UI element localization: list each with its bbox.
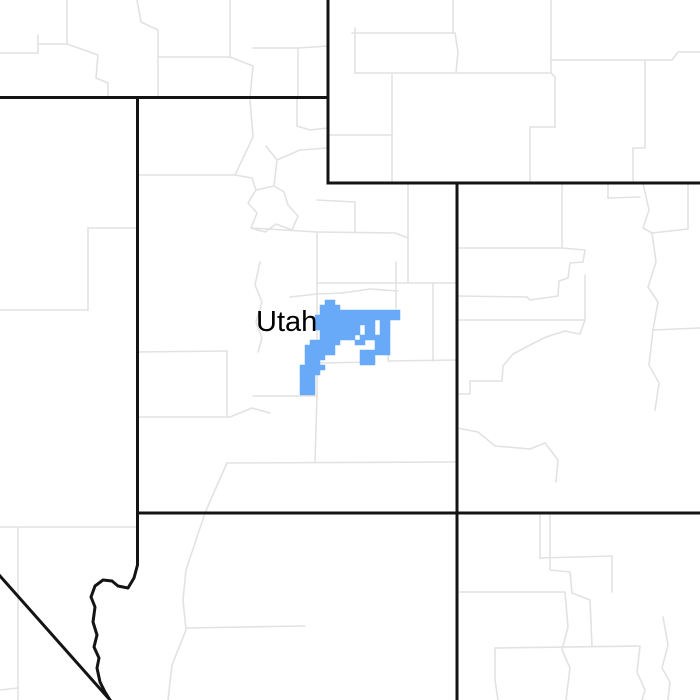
alert-region-cell[interactable] <box>300 385 306 391</box>
alert-region-cell[interactable] <box>350 315 356 321</box>
alert-region-cell[interactable] <box>365 320 371 326</box>
alert-region-cell[interactable] <box>340 335 346 341</box>
alert-region-cell[interactable] <box>380 340 386 346</box>
alert-region-cell[interactable] <box>330 330 336 336</box>
alert-region-cell[interactable] <box>370 360 376 366</box>
alert-region-cell[interactable] <box>340 315 346 321</box>
alert-region-cell[interactable] <box>360 340 366 346</box>
alert-region-cell[interactable] <box>300 370 306 376</box>
county-border-line <box>227 462 457 463</box>
alert-region-cell[interactable] <box>365 310 371 316</box>
alert-region-cell[interactable] <box>370 350 376 356</box>
alert-region-cell[interactable] <box>300 390 306 396</box>
county-border-line <box>277 148 328 160</box>
alert-region-cell[interactable] <box>360 355 366 361</box>
alert-region-cell[interactable] <box>345 335 351 341</box>
alert-region-cell[interactable] <box>360 360 366 366</box>
alert-region-cell[interactable] <box>365 315 371 321</box>
alert-region-cell[interactable] <box>325 345 331 351</box>
county-border-line <box>457 428 545 449</box>
alert-region-cell[interactable] <box>355 315 361 321</box>
alert-region-cell[interactable] <box>365 360 371 366</box>
alert-region-cell[interactable] <box>330 315 336 321</box>
alert-region-cell[interactable] <box>390 310 396 316</box>
alert-region-cell[interactable] <box>345 310 351 316</box>
alert-region-cell[interactable] <box>345 325 351 331</box>
county-border-line <box>457 320 585 394</box>
state-borders-layer <box>0 0 700 700</box>
alert-region-cell[interactable] <box>325 335 331 341</box>
alert-region-cell[interactable] <box>310 390 316 396</box>
alert-region-cell[interactable] <box>330 305 336 311</box>
county-border-line <box>168 463 227 700</box>
county-border-line <box>186 626 305 628</box>
alert-region-cell[interactable] <box>380 315 386 321</box>
alert-region-cell[interactable] <box>310 380 316 386</box>
alert-region-cell[interactable] <box>360 315 366 321</box>
alert-region-cell[interactable] <box>330 345 336 351</box>
alert-region-cell[interactable] <box>310 350 316 356</box>
alert-region-cell[interactable] <box>310 345 316 351</box>
alert-region-cell[interactable] <box>345 330 351 336</box>
alert-region-cell[interactable] <box>385 320 391 326</box>
county-border-line <box>648 233 658 330</box>
alert-region-cell[interactable] <box>355 340 361 346</box>
alert-region-cell[interactable] <box>360 335 366 341</box>
alert-region-cell[interactable] <box>320 305 326 311</box>
alert-region-cell[interactable] <box>335 320 341 326</box>
alert-region-cell[interactable] <box>315 345 321 351</box>
county-border-line <box>317 232 408 238</box>
alert-region-cell[interactable] <box>320 315 326 321</box>
alert-region-cell[interactable] <box>380 320 386 326</box>
alert-region-cell[interactable] <box>315 365 321 371</box>
alert-region-cell[interactable] <box>325 350 331 356</box>
alert-region-cell[interactable] <box>335 335 341 341</box>
county-border-line <box>317 200 355 232</box>
county-border-line <box>652 229 688 233</box>
alert-region-cell[interactable] <box>300 375 306 381</box>
alert-region-cell[interactable] <box>330 310 336 316</box>
county-border-line <box>297 98 328 131</box>
alert-region-cell[interactable] <box>315 360 321 366</box>
alert-region-cell[interactable] <box>310 355 316 361</box>
alert-region-cell[interactable] <box>340 310 346 316</box>
alert-region-cell[interactable] <box>360 310 366 316</box>
weather-map-canvas[interactable]: Utah <box>0 0 700 700</box>
alert-region-cell[interactable] <box>305 385 311 391</box>
county-border-line <box>266 146 277 186</box>
alert-region-cell[interactable] <box>360 320 366 326</box>
alert-region-cell[interactable] <box>320 365 326 371</box>
county-border-line <box>235 175 257 228</box>
alert-region-cell[interactable] <box>385 335 391 341</box>
alert-region-cell[interactable] <box>370 315 376 321</box>
alert-region-cell[interactable] <box>345 320 351 326</box>
alert-region-cell[interactable] <box>355 320 361 326</box>
alert-region-cell[interactable] <box>325 325 331 331</box>
alert-region-cell[interactable] <box>350 330 356 336</box>
alert-region-cell[interactable] <box>320 325 326 331</box>
alert-region-cell[interactable] <box>395 315 401 321</box>
county-border-line <box>290 293 342 297</box>
county-border-line <box>662 617 670 700</box>
alert-region-cell[interactable] <box>305 350 311 356</box>
county-border-line <box>0 688 18 690</box>
county-border-line <box>495 648 498 700</box>
state-border-line <box>91 513 138 700</box>
alert-region-cell[interactable] <box>320 355 326 361</box>
county-border-line <box>643 183 652 233</box>
alert-region-cell[interactable] <box>325 330 331 336</box>
alert-region-cell[interactable] <box>380 310 386 316</box>
county-border-line <box>608 197 640 198</box>
alert-region-cell[interactable] <box>380 330 386 336</box>
alert-region-cell[interactable] <box>395 310 401 316</box>
alert-region-cell[interactable] <box>350 325 356 331</box>
alert-region-cell[interactable] <box>320 320 326 326</box>
county-border-line <box>235 100 253 175</box>
county-borders-layer <box>0 0 700 700</box>
alert-region-cell[interactable] <box>325 310 331 316</box>
alert-region-cell[interactable] <box>365 355 371 361</box>
alert-region-cell[interactable] <box>375 345 381 351</box>
alert-region-cell[interactable] <box>370 355 376 361</box>
alert-region-cell[interactable] <box>355 330 361 336</box>
alert-region-cell[interactable] <box>315 320 321 326</box>
county-border-line <box>649 330 659 410</box>
alert-region-cell[interactable] <box>340 330 346 336</box>
alert-region-cell[interactable] <box>305 375 311 381</box>
alert-region-cell[interactable] <box>315 325 321 331</box>
alert-region-cell[interactable] <box>330 335 336 341</box>
county-border-line <box>562 592 570 700</box>
alert-region-cell[interactable] <box>325 320 331 326</box>
alert-region-cell[interactable] <box>330 320 336 326</box>
alert-region-cell[interactable] <box>325 315 331 321</box>
alert-region-cell[interactable] <box>365 330 371 336</box>
county-border-line <box>637 646 645 700</box>
alert-region-cell[interactable] <box>350 335 356 341</box>
alert-region-cell[interactable] <box>385 310 391 316</box>
alert-region-cell[interactable] <box>330 325 336 331</box>
alert-region-cell[interactable] <box>320 310 326 316</box>
alert-region-cell[interactable] <box>310 360 316 366</box>
alert-region-cell[interactable] <box>345 315 351 321</box>
county-border-line <box>342 289 398 293</box>
alert-region-cell[interactable] <box>310 370 316 376</box>
alert-region-cell[interactable] <box>335 315 341 321</box>
alert-region-cell[interactable] <box>325 305 331 311</box>
alert-region-cell[interactable] <box>380 325 386 331</box>
alert-region-cell[interactable] <box>385 340 391 346</box>
county-border-line <box>255 262 262 352</box>
alert-region-cell[interactable] <box>385 330 391 336</box>
alert-region-cell[interactable] <box>375 350 381 356</box>
county-border-line <box>138 408 271 417</box>
county-border-line <box>545 443 558 482</box>
alert-region-cell[interactable] <box>305 380 311 386</box>
alert-region-cell[interactable] <box>385 325 391 331</box>
alert-region-cell[interactable] <box>385 345 391 351</box>
alert-region-cell[interactable] <box>305 360 311 366</box>
alert-region-cell[interactable] <box>320 350 326 356</box>
alert-region-cell[interactable] <box>330 340 336 346</box>
alert-region-cell[interactable] <box>315 355 321 361</box>
alert-region-cell[interactable] <box>365 350 371 356</box>
alert-region-cell[interactable] <box>375 310 381 316</box>
alert-region-cell[interactable] <box>355 310 361 316</box>
alert-region-cell[interactable] <box>305 345 311 351</box>
county-border-line <box>455 33 458 73</box>
alert-region-cell[interactable] <box>355 325 361 331</box>
alert-region-cell[interactable] <box>335 310 341 316</box>
alert-region-cell[interactable] <box>340 320 346 326</box>
alert-region-cell[interactable] <box>320 335 326 341</box>
alert-region-cell[interactable] <box>325 340 331 346</box>
alert-region-cell[interactable] <box>305 370 311 376</box>
county-border-line <box>138 351 228 352</box>
alert-region-cell[interactable] <box>330 350 336 356</box>
alert-region-cell[interactable] <box>365 335 371 341</box>
county-border-line <box>230 57 253 98</box>
alert-region-cell[interactable] <box>370 310 376 316</box>
alert-region-cell[interactable] <box>370 320 376 326</box>
alert-region-cell[interactable] <box>325 300 331 306</box>
alert-region-cell[interactable] <box>315 350 321 356</box>
county-border-line <box>67 44 108 98</box>
alert-region-cell[interactable] <box>315 370 321 376</box>
alert-region-cell[interactable] <box>310 340 316 346</box>
alert-region-cell[interactable] <box>320 330 326 336</box>
county-border-line <box>551 73 555 127</box>
county-border-line <box>315 396 317 462</box>
county-border-line <box>653 328 700 330</box>
alert-region-cell[interactable] <box>310 365 316 371</box>
alert-region-cell[interactable] <box>375 340 381 346</box>
alert-region-cell[interactable] <box>340 325 346 331</box>
alert-region-cell[interactable] <box>370 335 376 341</box>
alert-region-cell[interactable] <box>350 310 356 316</box>
alert-region-cell[interactable] <box>310 375 316 381</box>
alert-region-cell[interactable] <box>305 355 311 361</box>
alert-region-cell[interactable] <box>310 385 316 391</box>
alert-region-cell[interactable] <box>330 300 336 306</box>
alert-region-cell[interactable] <box>380 335 386 341</box>
alert-region-polygon[interactable] <box>300 300 401 396</box>
alert-region-cell[interactable] <box>320 340 326 346</box>
alert-region-cell[interactable] <box>320 345 326 351</box>
alert-region-cell[interactable] <box>305 365 311 371</box>
alert-region-cell[interactable] <box>375 335 381 341</box>
county-border-line <box>551 52 700 60</box>
alert-region-cell[interactable] <box>315 340 321 346</box>
alert-region-cell[interactable] <box>375 315 381 321</box>
county-border-line <box>550 513 592 646</box>
county-border-line <box>457 296 558 300</box>
alert-region-cell[interactable] <box>380 345 386 351</box>
alert-region-cell[interactable] <box>300 365 306 371</box>
map-svg <box>0 0 700 700</box>
alert-region-cell[interactable] <box>370 330 376 336</box>
alert-region-cell[interactable] <box>335 325 341 331</box>
alert-region-cell[interactable] <box>390 315 396 321</box>
alert-region-cell[interactable] <box>385 350 391 356</box>
alert-region-cell[interactable] <box>335 340 341 346</box>
county-border-line <box>495 646 640 648</box>
alert-region-cell[interactable] <box>370 325 376 331</box>
alert-region-cell[interactable] <box>315 315 321 321</box>
county-border-line <box>137 0 158 30</box>
alert-region-cell[interactable] <box>300 380 306 386</box>
alert-region-cell[interactable] <box>350 320 356 326</box>
alert-region-cell[interactable] <box>365 325 371 331</box>
alert-region-cell[interactable] <box>335 330 341 336</box>
county-border-line <box>251 186 298 232</box>
county-border-line <box>558 248 585 296</box>
state-border-line <box>0 576 110 700</box>
alert-region-cell[interactable] <box>305 390 311 396</box>
alert-region-cell[interactable] <box>335 305 341 311</box>
alert-region-cell[interactable] <box>360 350 366 356</box>
alert-region-cell[interactable] <box>380 350 386 356</box>
alert-region-cell[interactable] <box>385 315 391 321</box>
county-border-line <box>253 48 298 98</box>
county-border-line <box>388 360 457 361</box>
county-border-line <box>298 46 328 48</box>
